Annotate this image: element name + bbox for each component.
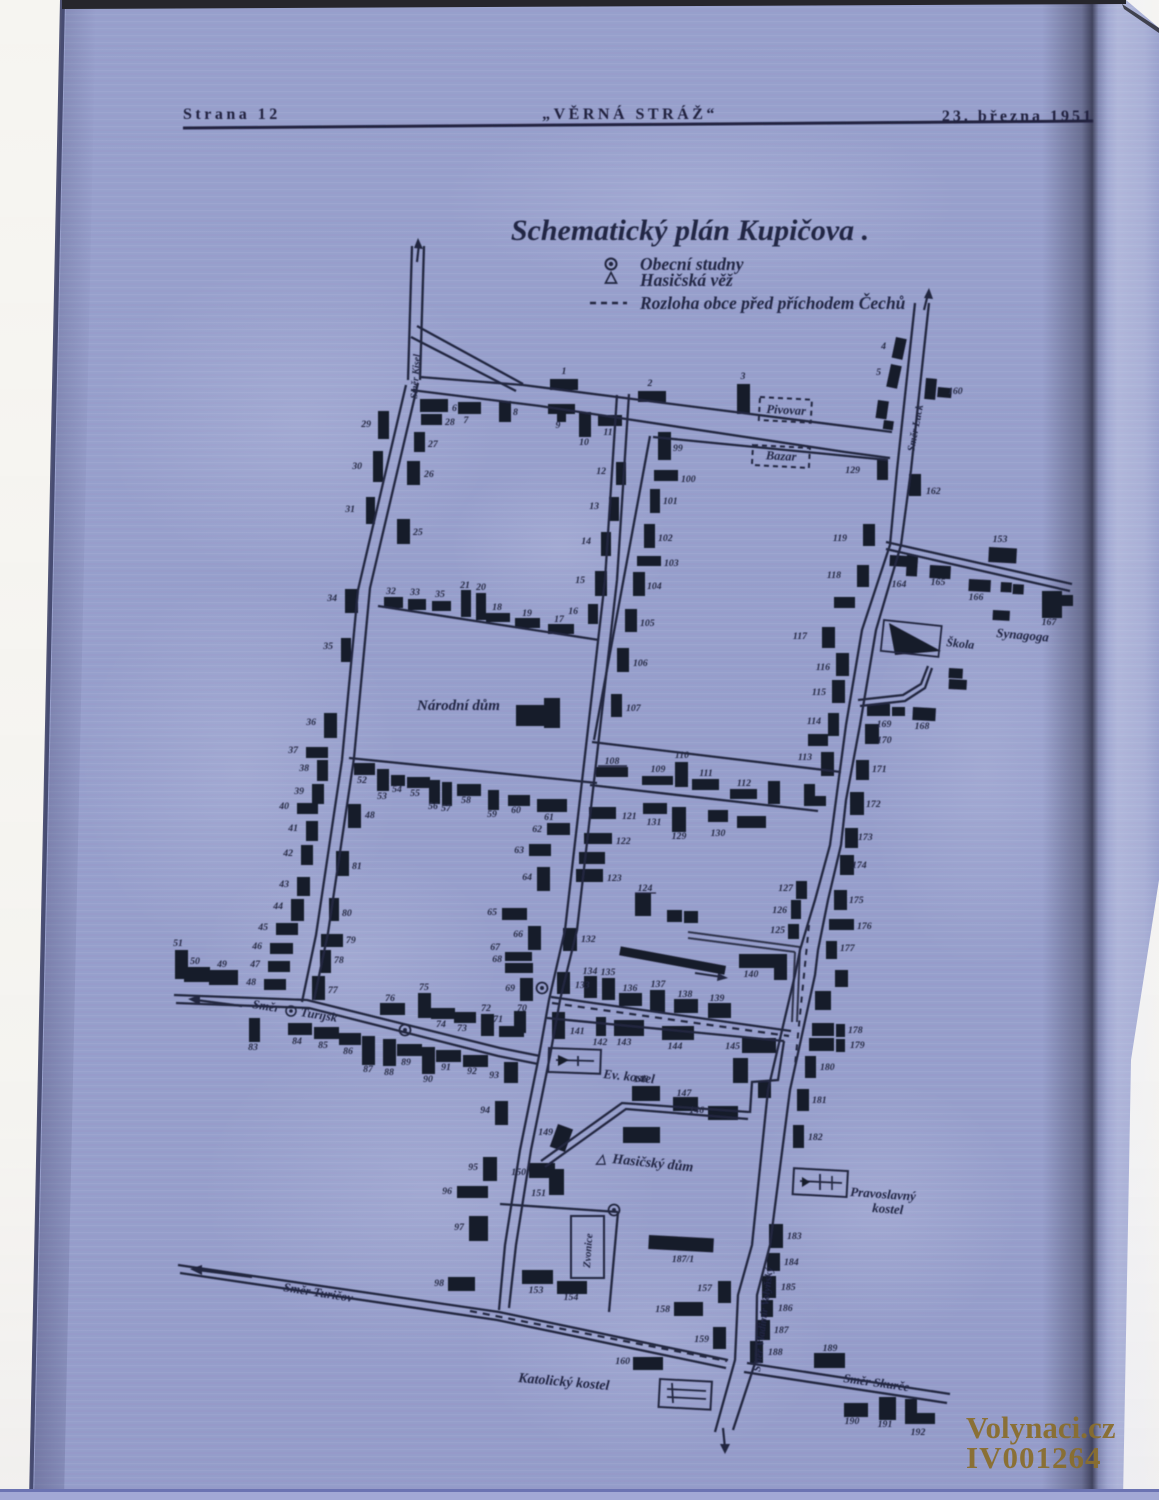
svg-text:IV001264: IV001264: [966, 1440, 1101, 1475]
